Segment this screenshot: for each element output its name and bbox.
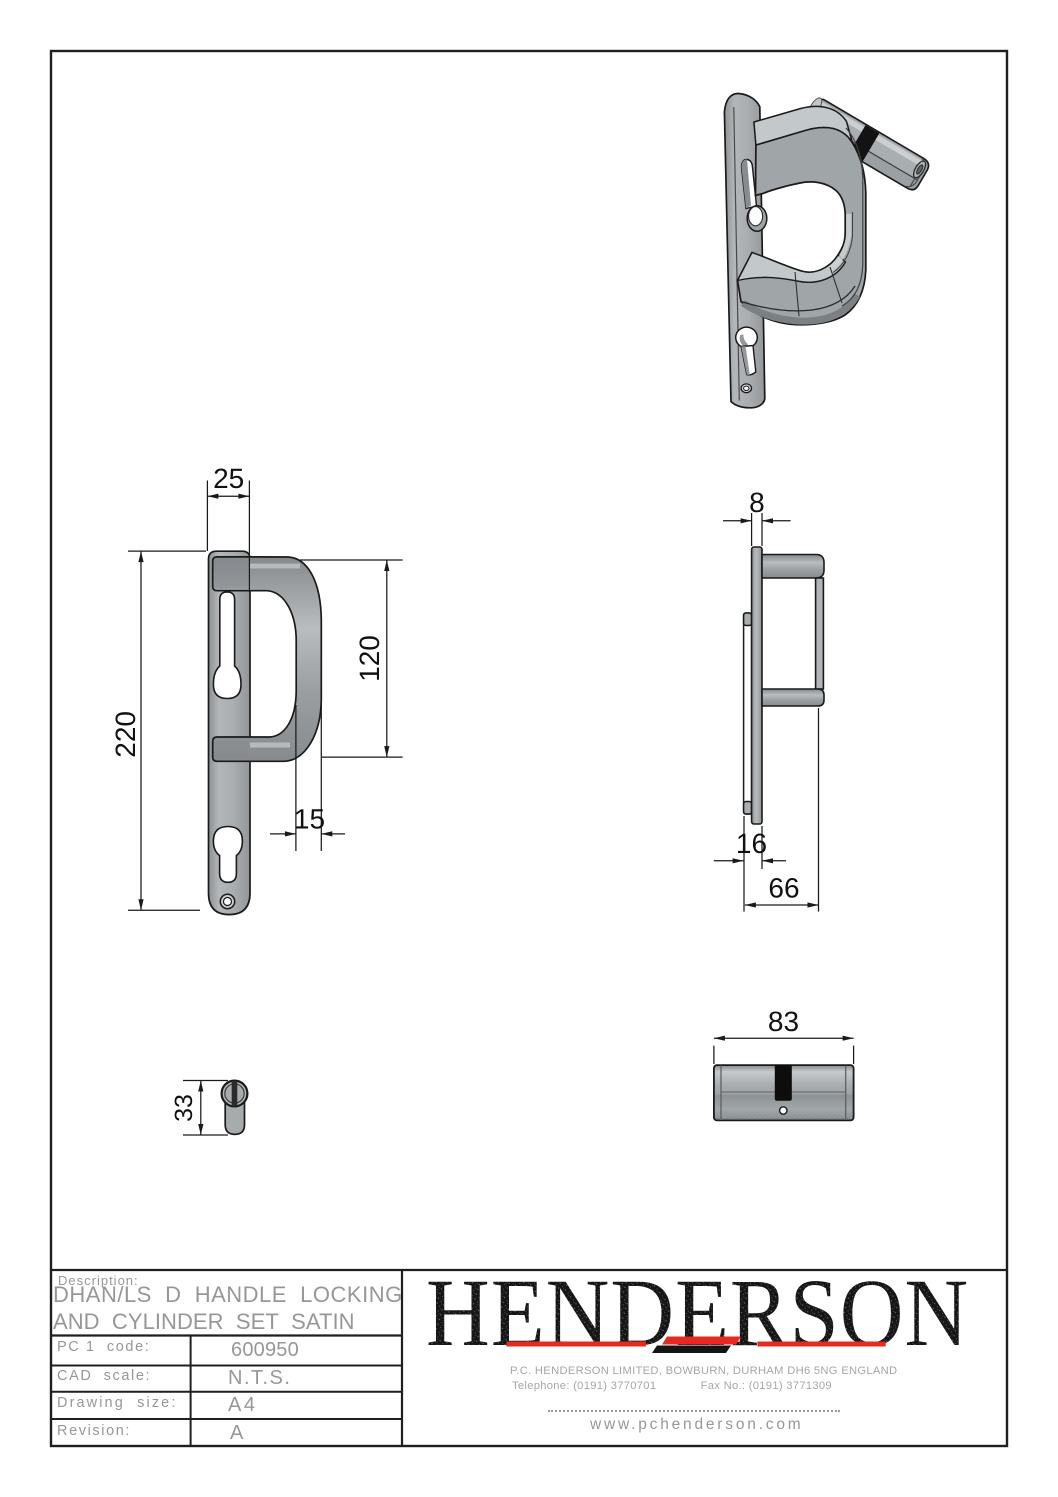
svg-text:16: 16	[736, 828, 767, 859]
svg-text:33: 33	[170, 1094, 198, 1122]
svg-text:220: 220	[110, 711, 141, 758]
svg-text:15: 15	[294, 804, 325, 835]
svg-text:8: 8	[749, 487, 765, 518]
svg-text:83: 83	[768, 1006, 799, 1037]
svg-text:66: 66	[768, 873, 799, 904]
svg-text:25: 25	[213, 463, 244, 494]
svg-text:120: 120	[354, 635, 385, 682]
